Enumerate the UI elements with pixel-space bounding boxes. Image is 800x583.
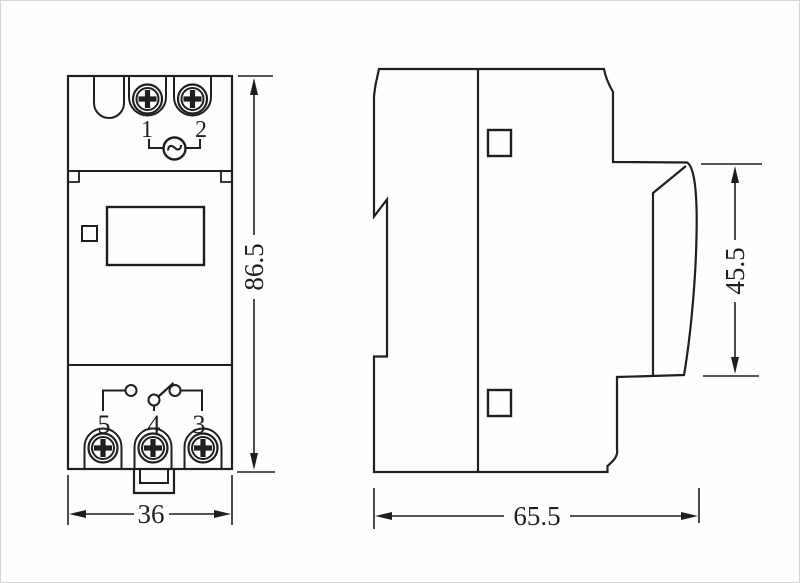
side-profile-outline <box>374 69 697 472</box>
dimension-value-65-5: 65.5 <box>513 501 560 531</box>
arrowhead-right-icon <box>681 512 698 520</box>
screw-terminal-1 <box>133 85 162 114</box>
ac-supply-symbol: ~ <box>149 132 200 165</box>
contact-lead-3 <box>181 391 203 412</box>
side-slot-upper <box>488 130 511 156</box>
screw-terminal-4 <box>139 434 168 463</box>
dimension-value-45-5: 45.5 <box>720 247 750 294</box>
contact-pivot <box>149 395 160 406</box>
lcd-display-window <box>107 207 204 265</box>
arrowhead-down-icon <box>250 453 258 470</box>
front-view: 1 2 ~ 5 4 3 <box>68 76 232 493</box>
side-slot-lower <box>488 390 511 416</box>
contact-point-left <box>126 385 137 396</box>
terminal-label-1: 1 <box>141 117 153 143</box>
arrowhead-up-icon <box>250 78 258 95</box>
phillips-cross-icon <box>139 90 157 108</box>
contact-point-right <box>170 385 181 396</box>
arrowhead-up-icon <box>731 166 739 183</box>
din-clip-tab-inner <box>140 469 168 483</box>
screw-terminal-3 <box>189 434 218 463</box>
arrowhead-left-icon <box>69 510 86 518</box>
relay-contact-symbol <box>103 383 202 411</box>
screw-terminal-2 <box>178 85 207 114</box>
dimension-value-36: 36 <box>138 499 165 529</box>
arrowhead-right-icon <box>214 510 231 518</box>
front-right-notch <box>221 171 232 182</box>
dimension-front-height: 86.5 <box>237 76 275 472</box>
side-view <box>374 69 697 472</box>
front-left-notch <box>68 171 79 182</box>
phillips-cross-icon <box>194 439 212 457</box>
ac-sine-icon: ~ <box>167 132 183 165</box>
arrowhead-down-icon <box>731 357 739 374</box>
dimension-side-depth: 65.5 <box>374 488 699 531</box>
technical-drawing-canvas: 1 2 ~ 5 4 3 <box>0 0 800 583</box>
phillips-cross-icon <box>94 439 112 457</box>
dimension-side-height: 45.5 <box>701 164 762 376</box>
front-wire-slot <box>94 76 124 118</box>
screw-terminal-5 <box>89 434 118 463</box>
phillips-cross-icon <box>144 439 162 457</box>
din-timer-dimension-drawing: 1 2 ~ 5 4 3 <box>1 1 800 583</box>
dimension-value-86-5: 86.5 <box>239 243 269 290</box>
arrowhead-left-icon <box>375 512 392 520</box>
indicator-square <box>82 226 97 241</box>
contact-lead-5 <box>103 391 126 412</box>
bulge-inner-edge <box>653 166 686 376</box>
phillips-cross-icon <box>184 90 202 108</box>
